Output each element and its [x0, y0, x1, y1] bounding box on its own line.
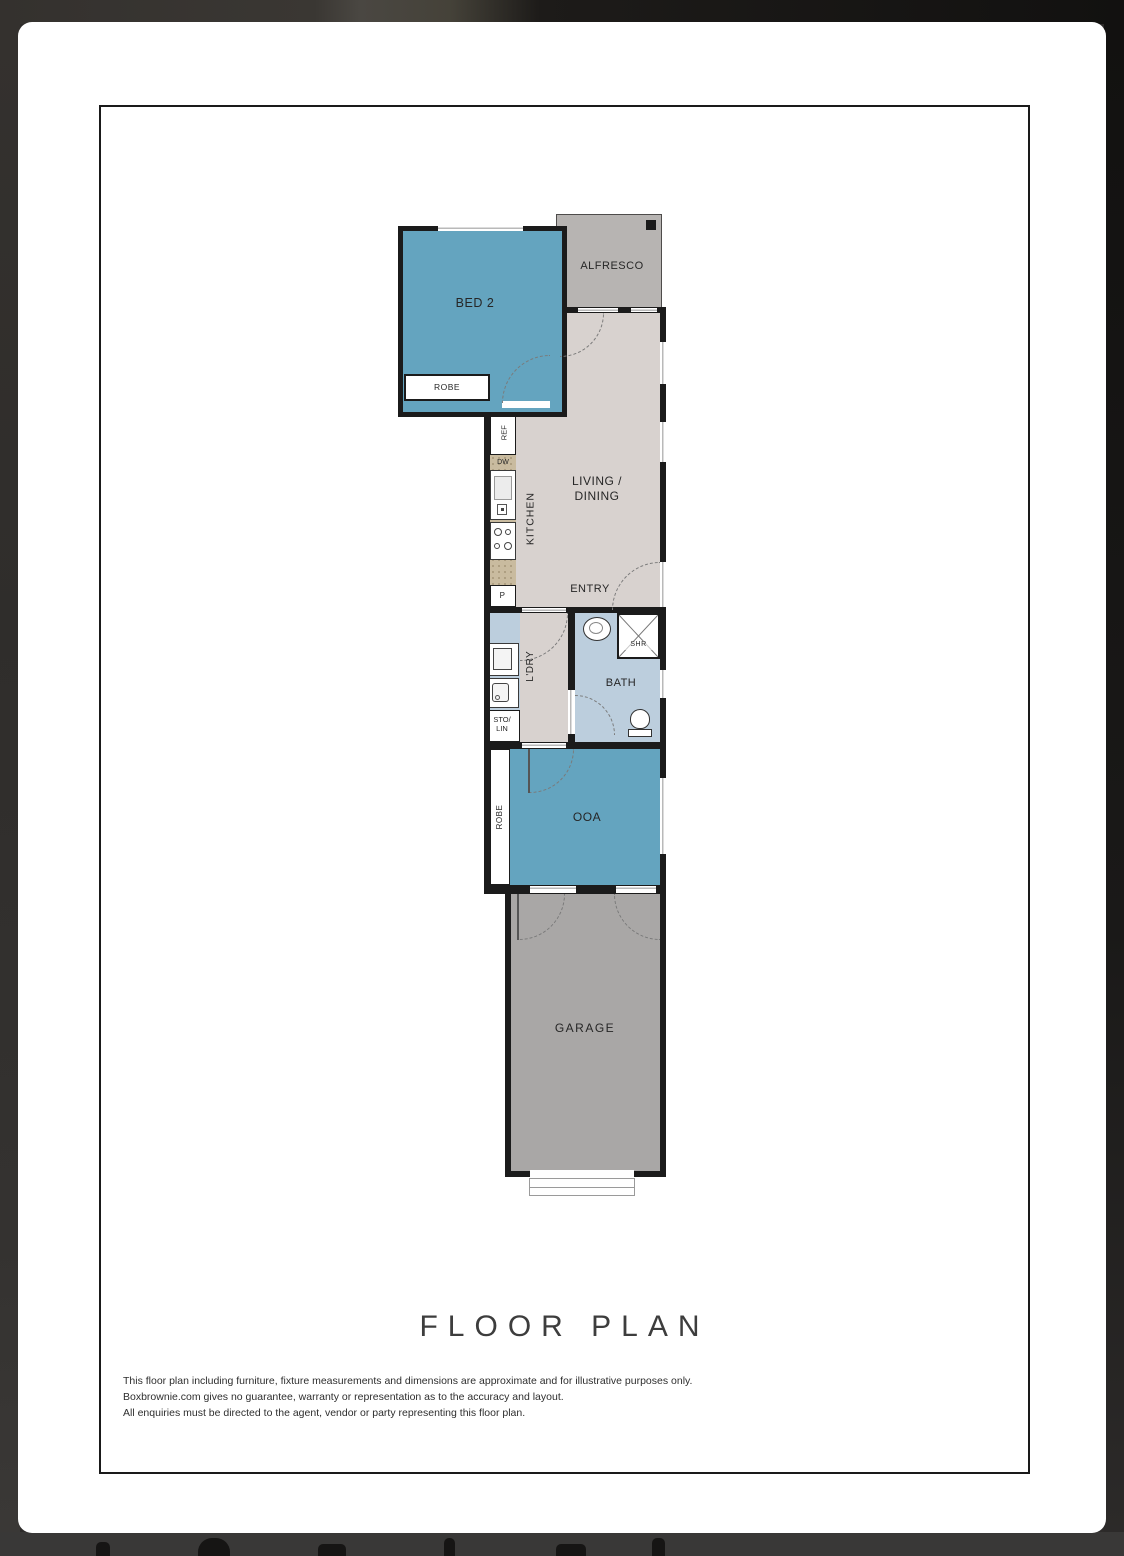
page-title: FLOOR PLAN: [99, 1310, 1030, 1344]
cropped-text-fragment: [318, 1544, 346, 1556]
disclaimer-line-1: This floor plan including furniture, fix…: [123, 1374, 823, 1390]
entry-door-opening: [660, 562, 666, 608]
cropped-text-fragment: [96, 1542, 110, 1556]
cropped-text-fragment: [198, 1538, 230, 1556]
disclaimer-line-3: All enquiries must be directed to the ag…: [123, 1406, 823, 1422]
pantry-label: P: [491, 591, 514, 601]
dishwasher-label: DW: [490, 459, 516, 468]
shower-label: SHR: [619, 641, 658, 650]
robe-bed1-label: ROBE: [495, 787, 505, 847]
fridge-icon: REF: [490, 412, 516, 455]
garage-label: GARAGE: [535, 1021, 635, 1036]
garage-door-opening-left: [530, 886, 576, 893]
window-bed2: [438, 226, 523, 231]
bed1-label: OOA: [557, 810, 617, 825]
window-living-1: [660, 342, 666, 384]
window-bath: [660, 670, 666, 698]
robe-bed2: ROBE: [404, 374, 490, 401]
cropped-text-fragment: [652, 1538, 665, 1556]
frame-footer-strip: [0, 1532, 1124, 1556]
robe-bed2-label: ROBE: [406, 382, 488, 393]
alfresco-door-opening: [578, 308, 618, 312]
garage-panel-door-opening: [530, 1170, 634, 1178]
alfresco-label: ALFRESCO: [562, 260, 662, 274]
washer-icon: [487, 643, 519, 676]
pantry-icon: P: [490, 585, 516, 607]
frame-shading-top: [0, 0, 1124, 24]
kitchen-sink-icon: [490, 470, 516, 520]
laundry-label: L'DRY: [525, 636, 538, 696]
bed2-label: BED 2: [425, 296, 525, 312]
bath-label: BATH: [591, 677, 651, 691]
hall-door-opening: [522, 608, 566, 612]
laundry-trough-icon: [487, 678, 519, 708]
window-living-2: [660, 422, 666, 462]
alfresco-post: [646, 220, 656, 230]
robe-bed1: ROBE: [490, 749, 510, 885]
alfresco-window: [631, 308, 657, 312]
frame-shading-left: [0, 20, 20, 1536]
door-leaf-bed1: [528, 749, 530, 793]
wall-garage-west: [505, 892, 511, 1177]
living-dining-label: LIVING / DINING: [547, 474, 647, 504]
storage-linen-box: STO/ LIN: [486, 710, 520, 742]
cropped-text-fragment: [556, 1544, 586, 1556]
window-bed1: [660, 778, 666, 854]
disclaimer-line-2: Boxbrownie.com gives no guarantee, warra…: [123, 1390, 823, 1406]
shower-icon: SHR: [617, 613, 660, 659]
bed1-door-opening: [522, 743, 566, 748]
toilet-tank: [628, 729, 652, 737]
entry-label: ENTRY: [560, 583, 620, 597]
garage-door-opening-right: [616, 886, 656, 893]
kitchen-label: KITCHEN: [524, 489, 537, 549]
basin-icon: [583, 617, 611, 641]
door-leaf-garage-left: [517, 894, 519, 940]
storage-linen-label: STO/ LIN: [487, 715, 517, 734]
bath-door-opening: [568, 690, 575, 734]
wall-bed1-north: [484, 742, 666, 749]
garage-panel-door: [529, 1178, 635, 1196]
toilet-icon: [630, 709, 650, 729]
disclaimer: This floor plan including furniture, fix…: [123, 1374, 823, 1421]
frame-shading-right: [1104, 20, 1124, 1536]
floorplan-page: REF DW P STO/ LIN SHR: [18, 22, 1106, 1533]
cropped-text-fragment: [444, 1538, 455, 1556]
cooktop-icon: [490, 522, 516, 560]
